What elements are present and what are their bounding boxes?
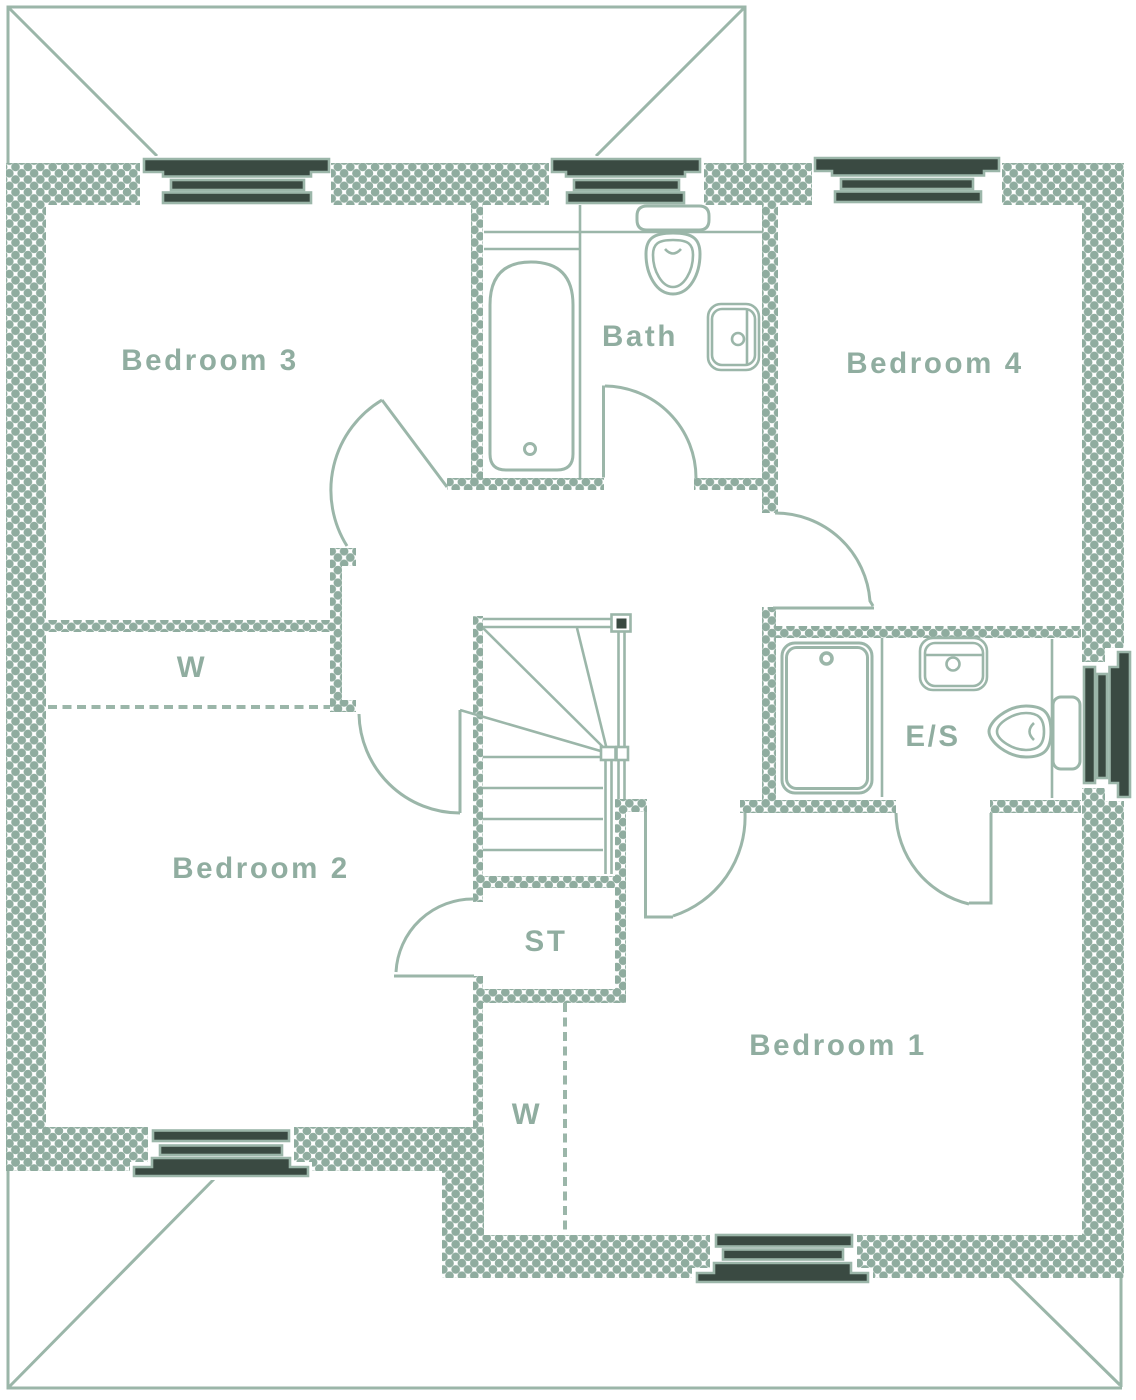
svg-text:W: W <box>512 1098 542 1131</box>
svg-text:Bedroom 1: Bedroom 1 <box>749 1029 926 1062</box>
svg-text:Bedroom 3: Bedroom 3 <box>121 344 298 377</box>
svg-text:ST: ST <box>525 925 568 958</box>
svg-text:Bath: Bath <box>602 320 678 353</box>
svg-text:W: W <box>177 651 207 684</box>
svg-text:Bedroom 4: Bedroom 4 <box>846 347 1023 380</box>
svg-text:E/S: E/S <box>905 720 960 753</box>
svg-text:Bedroom 2: Bedroom 2 <box>172 852 349 885</box>
